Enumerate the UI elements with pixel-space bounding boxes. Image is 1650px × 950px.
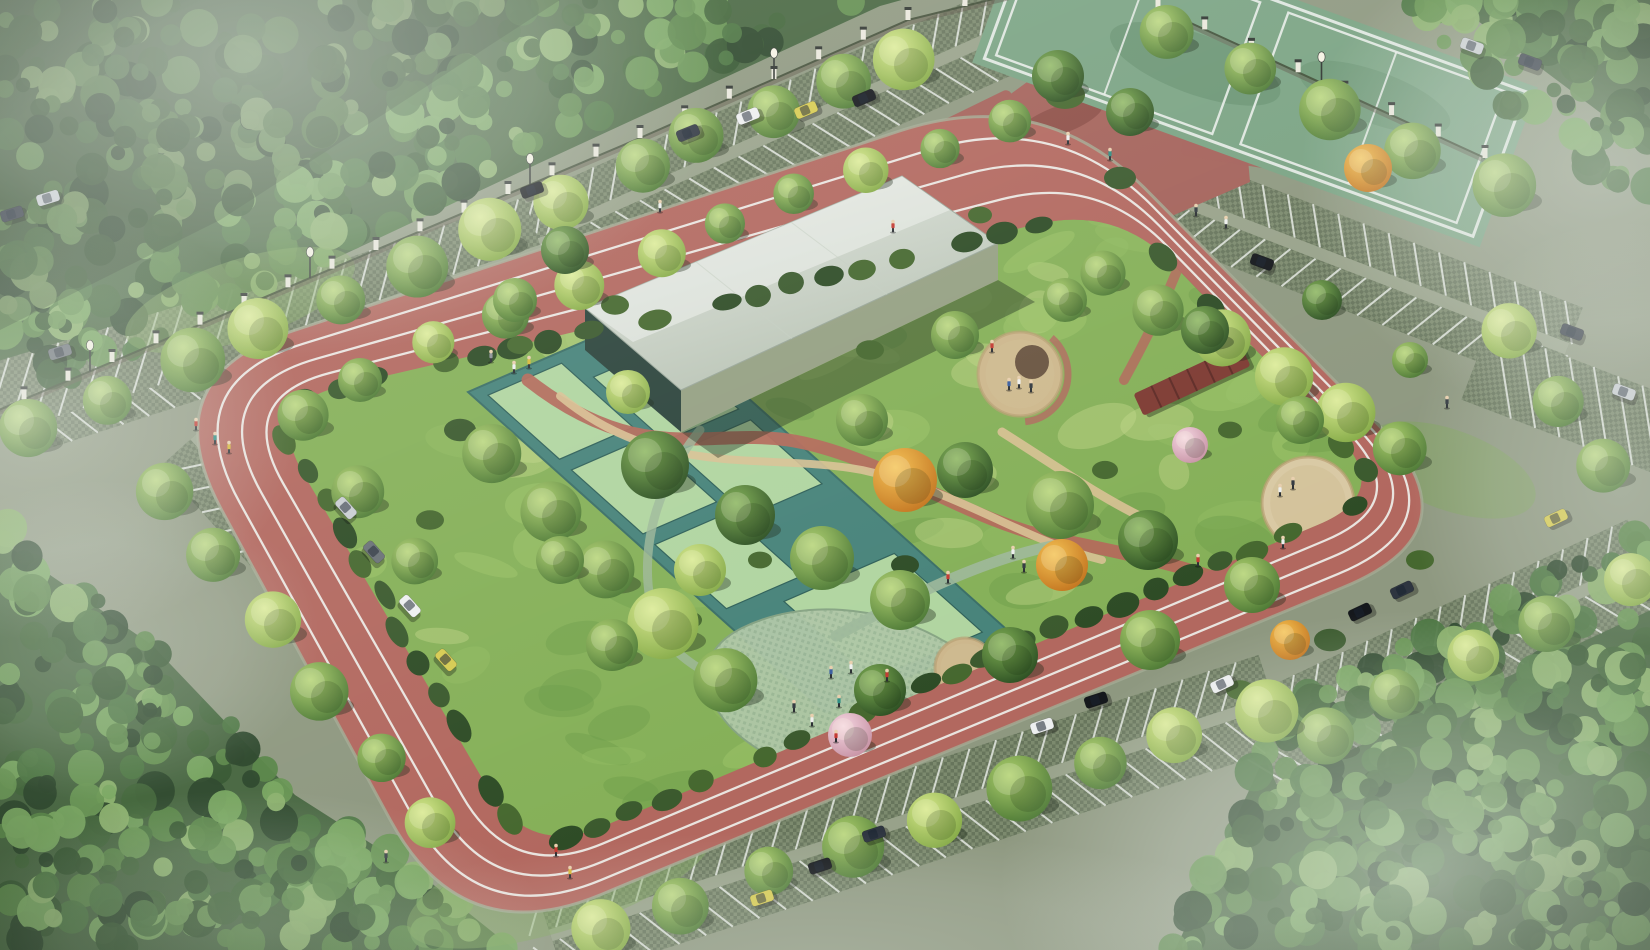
- aerial-site-plan-rendering: [0, 0, 1650, 950]
- mist: [0, 0, 1650, 950]
- park-and-parking-aerial-view: [0, 0, 1650, 950]
